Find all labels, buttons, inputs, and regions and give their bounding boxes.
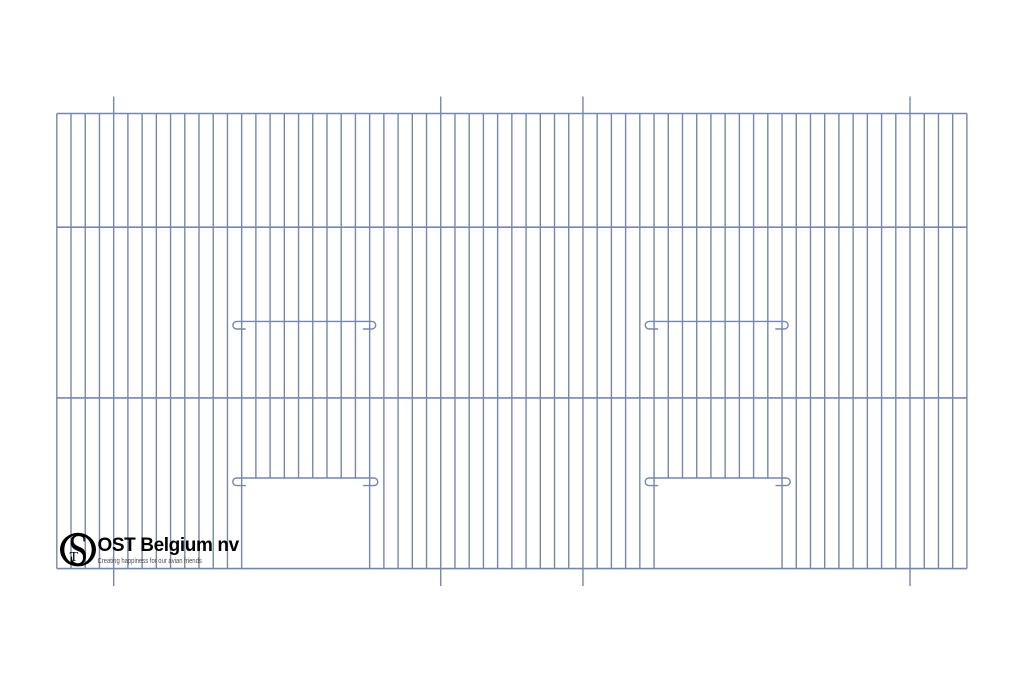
svg-text:OST Belgium nv: OST Belgium nv [98,534,240,556]
svg-text:S: S [68,523,88,574]
svg-text:T: T [70,550,79,565]
svg-text:Creating happiness for our avi: Creating happiness for our avian friends [98,557,203,565]
